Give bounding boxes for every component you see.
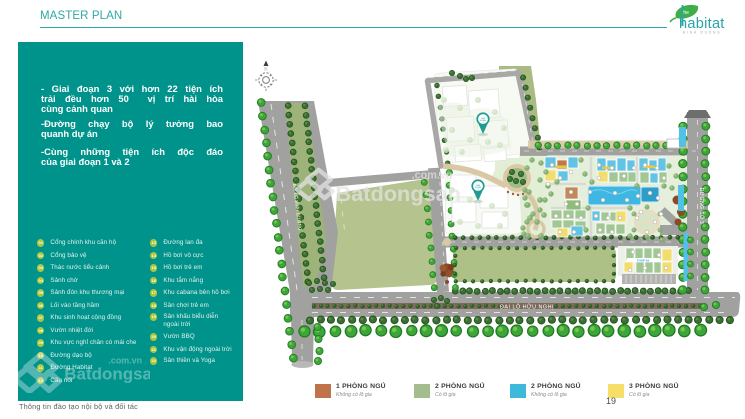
- svg-text:.com.vn: .com.vn: [412, 170, 453, 182]
- svg-text:Batdongsan: Batdongsan: [64, 364, 150, 383]
- svg-text:.com.vn: .com.vn: [108, 355, 142, 365]
- svg-text:ĐẠI LỘ HỮU NGHỊ: ĐẠI LỘ HỮU NGHỊ: [500, 304, 554, 311]
- svg-text:Batdongsan: Batdongsan: [335, 181, 461, 206]
- svg-text:THÁP 05: THÁP 05: [637, 257, 650, 262]
- svg-text:ĐƯỜNG SỐ 3: ĐƯỜNG SỐ 3: [698, 188, 705, 224]
